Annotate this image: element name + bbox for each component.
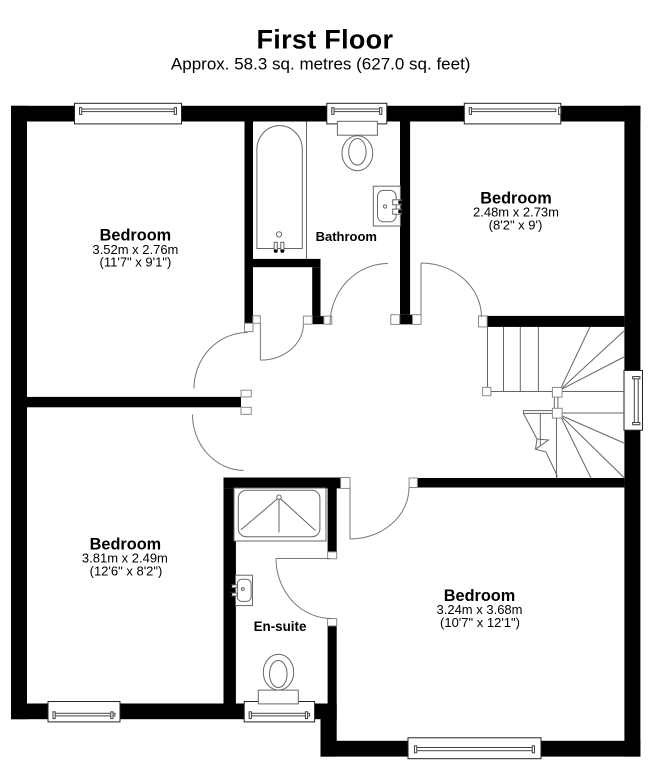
svg-text:Bathroom: Bathroom xyxy=(316,229,377,244)
svg-text:Approx. 58.3 sq. metres (627.0: Approx. 58.3 sq. metres (627.0 sq. feet) xyxy=(171,55,471,74)
svg-text:En-suite: En-suite xyxy=(254,619,307,634)
svg-text:(8'2" x 9'): (8'2" x 9') xyxy=(489,218,543,233)
svg-text:First Floor: First Floor xyxy=(256,24,393,54)
svg-text:(11'7" x 9'1"): (11'7" x 9'1") xyxy=(100,255,172,270)
svg-text:(12'6" x 8'2"): (12'6" x 8'2") xyxy=(90,563,163,578)
svg-text:(10'7" x 12'1"): (10'7" x 12'1") xyxy=(440,615,520,630)
